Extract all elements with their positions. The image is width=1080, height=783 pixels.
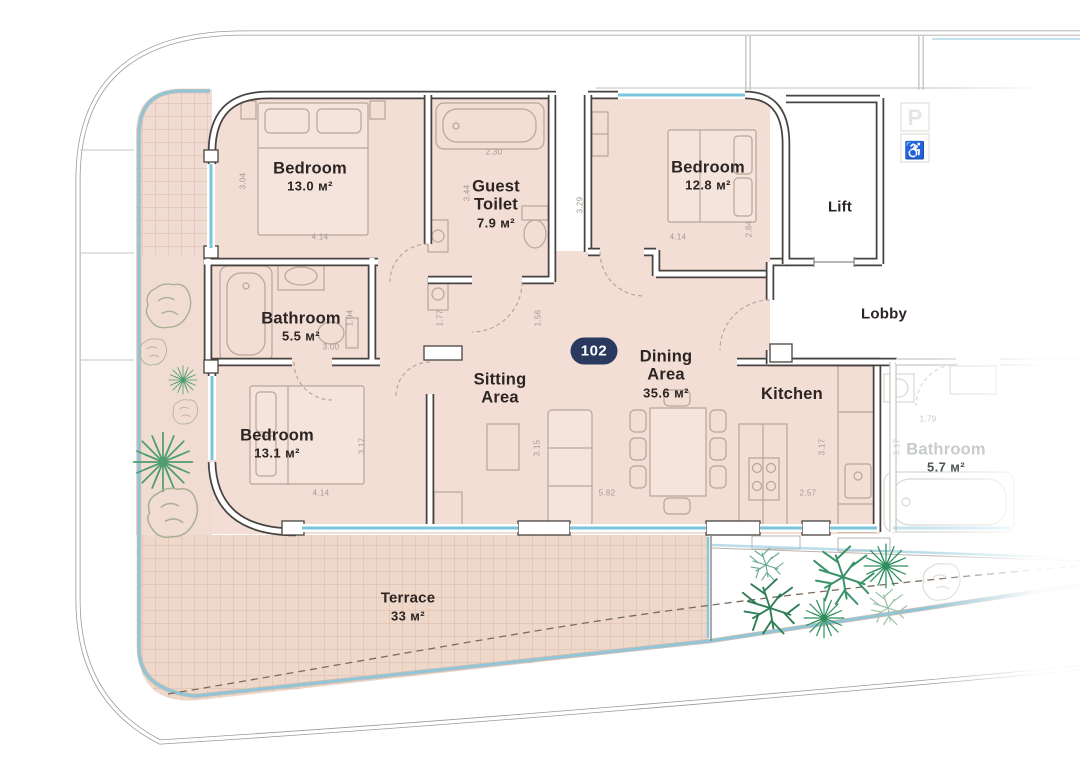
room-area: 12.8 м² [671, 179, 745, 194]
parking-icon: P [908, 105, 923, 130]
dimension-label: 3.29 [576, 197, 585, 214]
room-label-lift: Lift [828, 200, 852, 217]
room-label-bedroom-top-left: Bedroom 13.0 м² [273, 159, 347, 194]
dimension-label: 5.82 [599, 489, 616, 498]
room-name: Lift [828, 200, 852, 217]
room-area: 13.1 м² [240, 447, 314, 462]
wheelchair-icon: ♿ [904, 140, 925, 160]
room-name: Dining Area [633, 347, 699, 384]
room-area: 7.9 м² [464, 216, 528, 231]
dimension-label: 2.84 [745, 221, 754, 238]
dimension-label: 3.15 [533, 440, 542, 457]
room-name: Bedroom [240, 426, 314, 444]
room-label-neighbor-bathroom: Bathroom 5.7 м² [906, 440, 986, 475]
dimension-label: 2.57 [800, 489, 817, 498]
room-name: Bathroom [906, 440, 986, 458]
dimension-label: 1.77 [436, 310, 445, 327]
room-label-bathroom: Bathroom 5.5 м² [261, 309, 341, 344]
room-name: Kitchen [761, 385, 823, 403]
room-label-bedroom-top-right: Bedroom 12.8 м² [671, 158, 745, 193]
room-label-kitchen: Kitchen [761, 385, 823, 403]
room-name: Lobby [861, 307, 907, 324]
floorplan-page: P ♿ Bedroom 13.0 м² Guest Toilet 7.9 м² … [0, 0, 1080, 783]
room-label-bedroom-bottom: Bedroom 13.1 м² [240, 426, 314, 461]
room-name: Terrace [381, 590, 436, 607]
dimension-label: 2.30 [486, 148, 503, 157]
room-label-lobby: Lobby [861, 307, 907, 324]
room-label-sitting-area: Sitting Area [471, 371, 529, 408]
dimension-label: 3.04 [239, 173, 248, 190]
room-name: Bedroom [671, 158, 745, 176]
room-area: 35.6 м² [633, 386, 699, 401]
room-area: 5.5 м² [261, 330, 341, 345]
room-area: 33 м² [381, 609, 436, 624]
room-name: Bathroom [261, 309, 341, 327]
corridor-signs: P ♿ [901, 103, 929, 162]
dimension-label: 1.94 [346, 310, 355, 327]
dimension-label: 4.14 [670, 233, 687, 242]
unit-number-badge[interactable]: 102 [571, 338, 618, 365]
room-label-guest-toilet: Guest Toilet 7.9 м² [464, 177, 528, 230]
dimension-label: 4.14 [312, 233, 329, 242]
room-name: Sitting Area [471, 371, 529, 408]
dimension-label: 3.17 [818, 439, 827, 456]
room-name: Guest Toilet [464, 177, 528, 214]
dimension-label: 3.17 [358, 438, 367, 455]
dimension-label: 3.17 [893, 439, 902, 456]
floor-plan-drawing: P ♿ [0, 0, 1080, 783]
room-name: Bedroom [273, 159, 347, 177]
dimension-label: 1.79 [920, 415, 937, 424]
dimension-label: 1.56 [534, 310, 543, 327]
room-area: 13.0 м² [273, 180, 347, 195]
room-area: 5.7 м² [906, 461, 986, 476]
dimension-label: 4.14 [313, 489, 330, 498]
room-label-dining-area: Dining Area 35.6 м² [633, 347, 699, 400]
room-label-terrace: Terrace 33 м² [381, 590, 436, 623]
